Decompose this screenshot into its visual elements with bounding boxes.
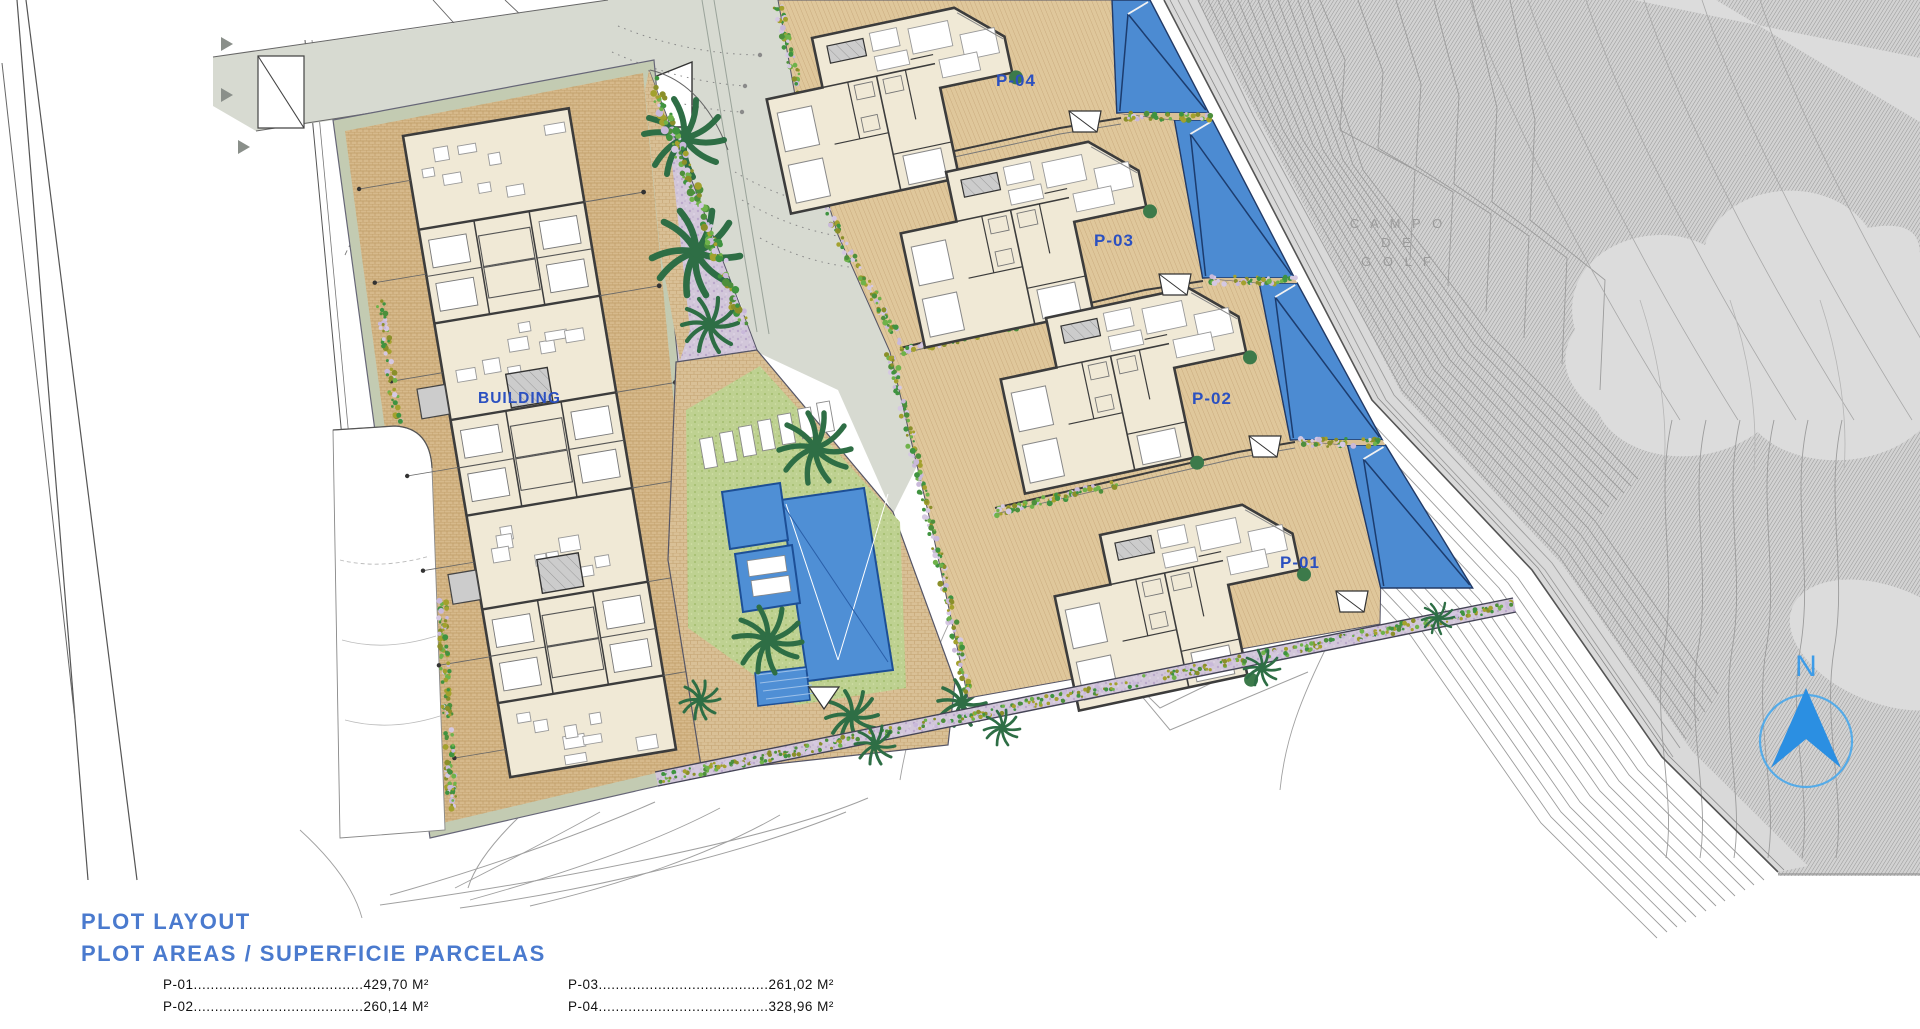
svg-text:P-04: P-04 <box>996 71 1036 90</box>
svg-text:PLOT LAYOUT: PLOT LAYOUT <box>81 909 251 934</box>
svg-text:BUILDING: BUILDING <box>478 390 561 407</box>
svg-text:G O L F: G O L F <box>1361 254 1435 269</box>
svg-text:P-04..........................: P-04....................................… <box>568 999 834 1014</box>
svg-text:PLOT AREAS / SUPERFICIE PARCEL: PLOT AREAS / SUPERFICIE PARCELAS <box>81 941 546 966</box>
svg-text:P-02: P-02 <box>1192 389 1232 408</box>
svg-text:P-01: P-01 <box>1280 553 1320 572</box>
svg-text:C A M P O: C A M P O <box>1350 216 1446 231</box>
svg-text:P-03..........................: P-03....................................… <box>568 977 834 992</box>
svg-text:N: N <box>1795 650 1817 683</box>
svg-text:D E: D E <box>1381 235 1415 250</box>
svg-text:P-01..........................: P-01....................................… <box>163 977 429 992</box>
svg-text:P-02..........................: P-02....................................… <box>163 999 429 1014</box>
svg-text:P-03: P-03 <box>1094 231 1134 250</box>
